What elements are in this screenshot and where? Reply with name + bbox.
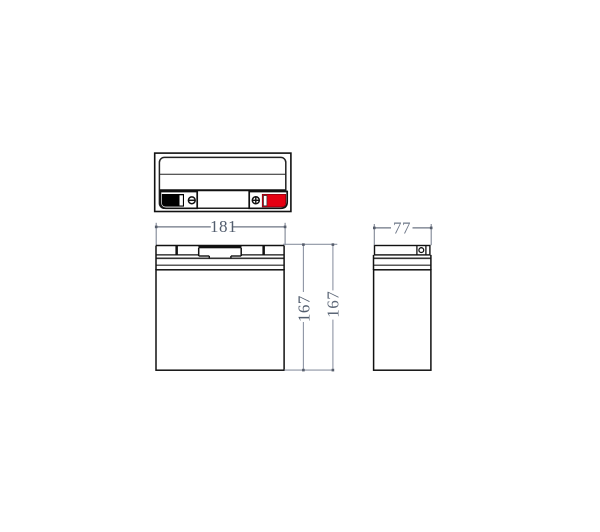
svg-text:167: 167 [324,291,343,318]
svg-text:167: 167 [294,295,313,322]
svg-text:77: 77 [393,219,411,238]
svg-text:181: 181 [210,217,237,236]
